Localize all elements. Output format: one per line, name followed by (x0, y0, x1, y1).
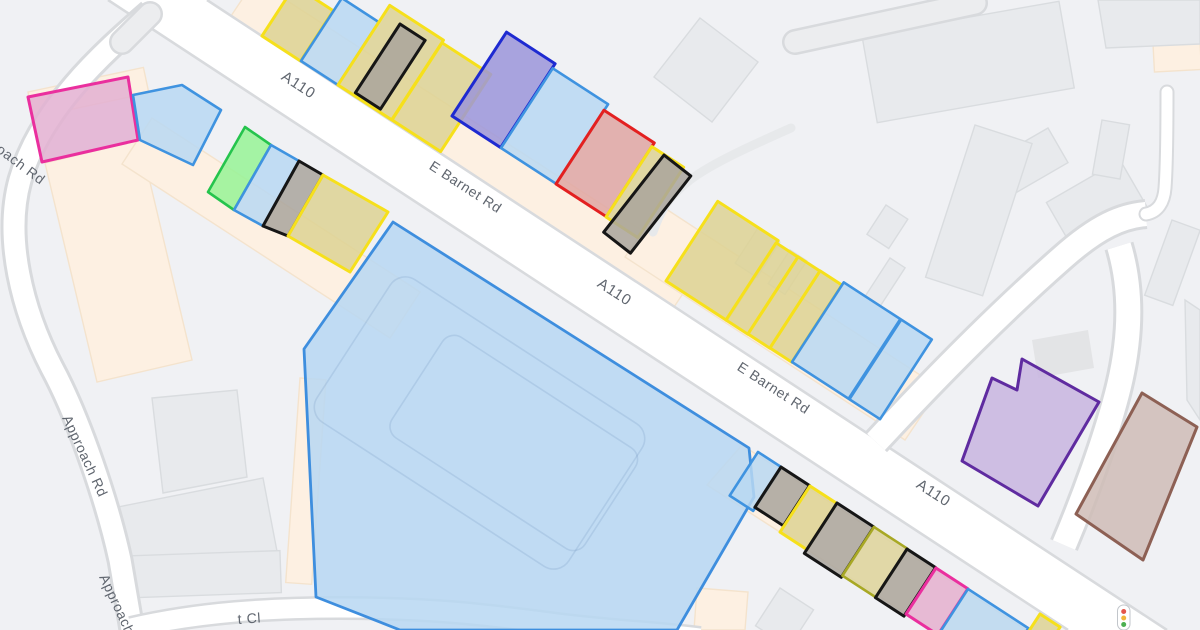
map-canvas[interactable]: A110 E Barnet Rd A110 E Barnet Rd A110 A… (0, 0, 1200, 630)
traffic-light-icon (1118, 605, 1131, 630)
map-svg: A110 E Barnet Rd A110 E Barnet Rd A110 A… (0, 0, 1200, 630)
road-label-close-fragment: t Cl (237, 609, 261, 627)
